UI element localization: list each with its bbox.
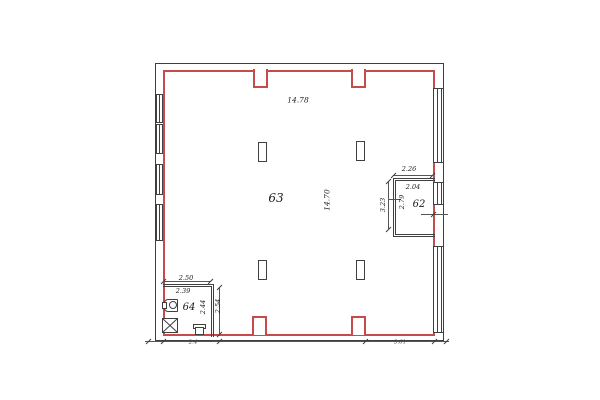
- pilaster: [351, 316, 366, 335]
- toilet-icon: [195, 327, 204, 335]
- column: [258, 260, 267, 280]
- room-62-dim-left: 2.79: [399, 195, 406, 209]
- room-64-dim-right-inner: 2.44: [200, 300, 207, 314]
- room-64-dim-right-outer: 2.54: [215, 299, 222, 313]
- bottom-dim-right: 3.61: [394, 340, 406, 346]
- column: [356, 260, 365, 280]
- window-icon: [156, 124, 163, 154]
- room-62-top-dimension-line: [393, 175, 433, 176]
- pilaster: [351, 69, 366, 88]
- room-62-dim-top-outer: 2.26: [402, 166, 416, 173]
- room-64-dim-top-outer: 2.50: [179, 275, 193, 282]
- floor-plan-canvas: 14.78 63 14.70 2.26 2.04 2.79 3.23 62 2.…: [0, 0, 600, 400]
- ventilation-shaft-icon: [162, 318, 178, 333]
- room-64-number: 64: [183, 303, 196, 313]
- room-62-number: 62: [413, 200, 426, 210]
- room-63-width-dimension: 14.78: [287, 96, 308, 104]
- column: [356, 141, 365, 161]
- tap-icon: [162, 302, 167, 309]
- room-63-number: 63: [268, 192, 283, 204]
- window-icon: [433, 246, 443, 333]
- column: [258, 142, 267, 162]
- bottom-dim-middle: · · ·: [291, 339, 300, 345]
- window-icon: [433, 88, 443, 163]
- window-icon: [156, 94, 163, 123]
- pilaster: [252, 316, 267, 335]
- bottom-dim-left: 2.4: [189, 340, 198, 346]
- window-icon: [156, 164, 163, 195]
- room-62-pier-dimension-line: [388, 181, 389, 229]
- room-63-height-dimension: 14.70: [323, 189, 331, 210]
- room-62-dim-top-inner: 2.04: [406, 184, 420, 191]
- pilaster: [253, 69, 268, 88]
- wash-basin-bowl-icon: [169, 301, 177, 309]
- room-62-dim-pier: 3.23: [380, 198, 387, 212]
- window-icon: [156, 204, 163, 241]
- room-64-dim-top-inner: 2.39: [176, 288, 190, 295]
